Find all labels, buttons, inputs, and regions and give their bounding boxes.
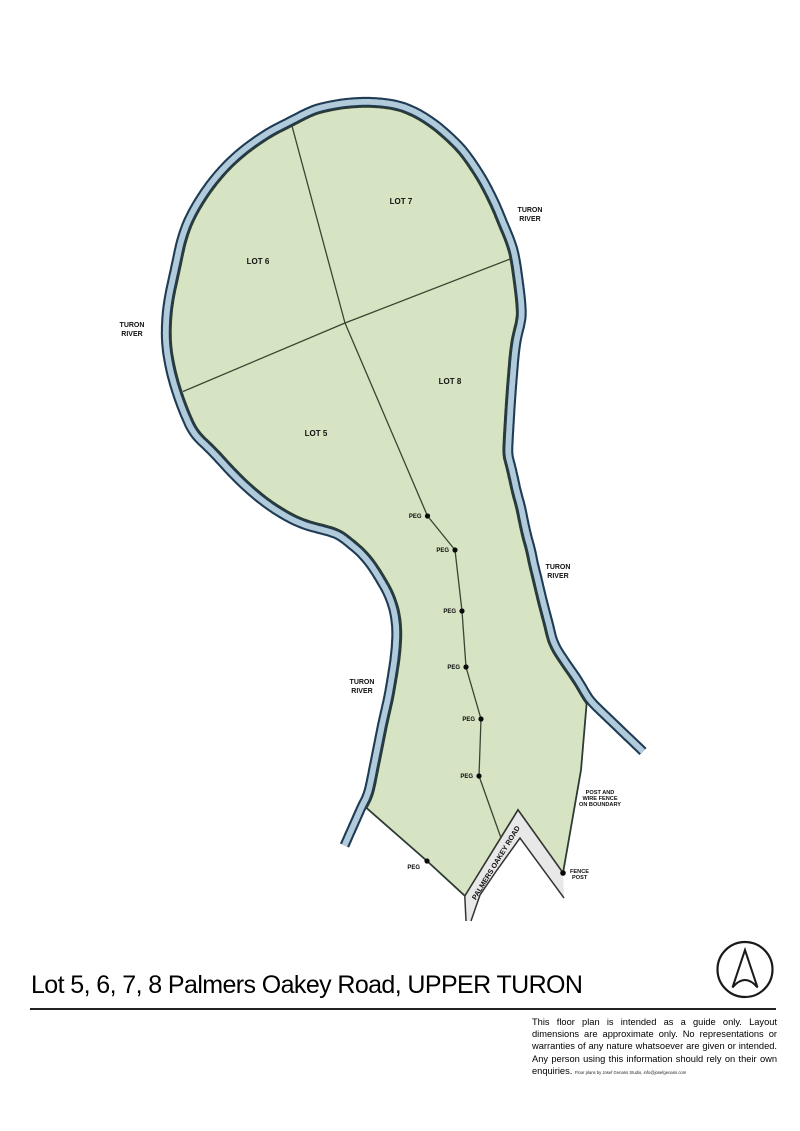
svg-text:PEG: PEG [462,717,475,723]
svg-text:TURON: TURON [518,207,543,214]
svg-text:TURON: TURON [350,679,375,686]
svg-text:RIVER: RIVER [519,216,540,223]
svg-text:RIVER: RIVER [121,331,142,338]
svg-text:PEG: PEG [436,548,449,554]
svg-text:PEG: PEG [447,665,460,671]
svg-text:PEG: PEG [409,514,422,520]
svg-text:LOT 5: LOT 5 [305,429,328,438]
svg-text:ON BOUNDARY: ON BOUNDARY [579,802,621,808]
svg-text:PEG: PEG [407,865,420,871]
svg-text:PEG: PEG [443,609,456,615]
svg-text:POST: POST [572,875,588,881]
svg-text:RIVER: RIVER [351,688,372,695]
svg-text:TURON: TURON [546,564,571,571]
svg-text:TURON: TURON [120,322,145,329]
svg-text:LOT 8: LOT 8 [439,377,462,386]
svg-text:PEG: PEG [460,774,473,780]
svg-text:RIVER: RIVER [547,573,568,580]
svg-text:LOT 7: LOT 7 [390,197,413,206]
svg-text:LOT 6: LOT 6 [247,257,270,266]
